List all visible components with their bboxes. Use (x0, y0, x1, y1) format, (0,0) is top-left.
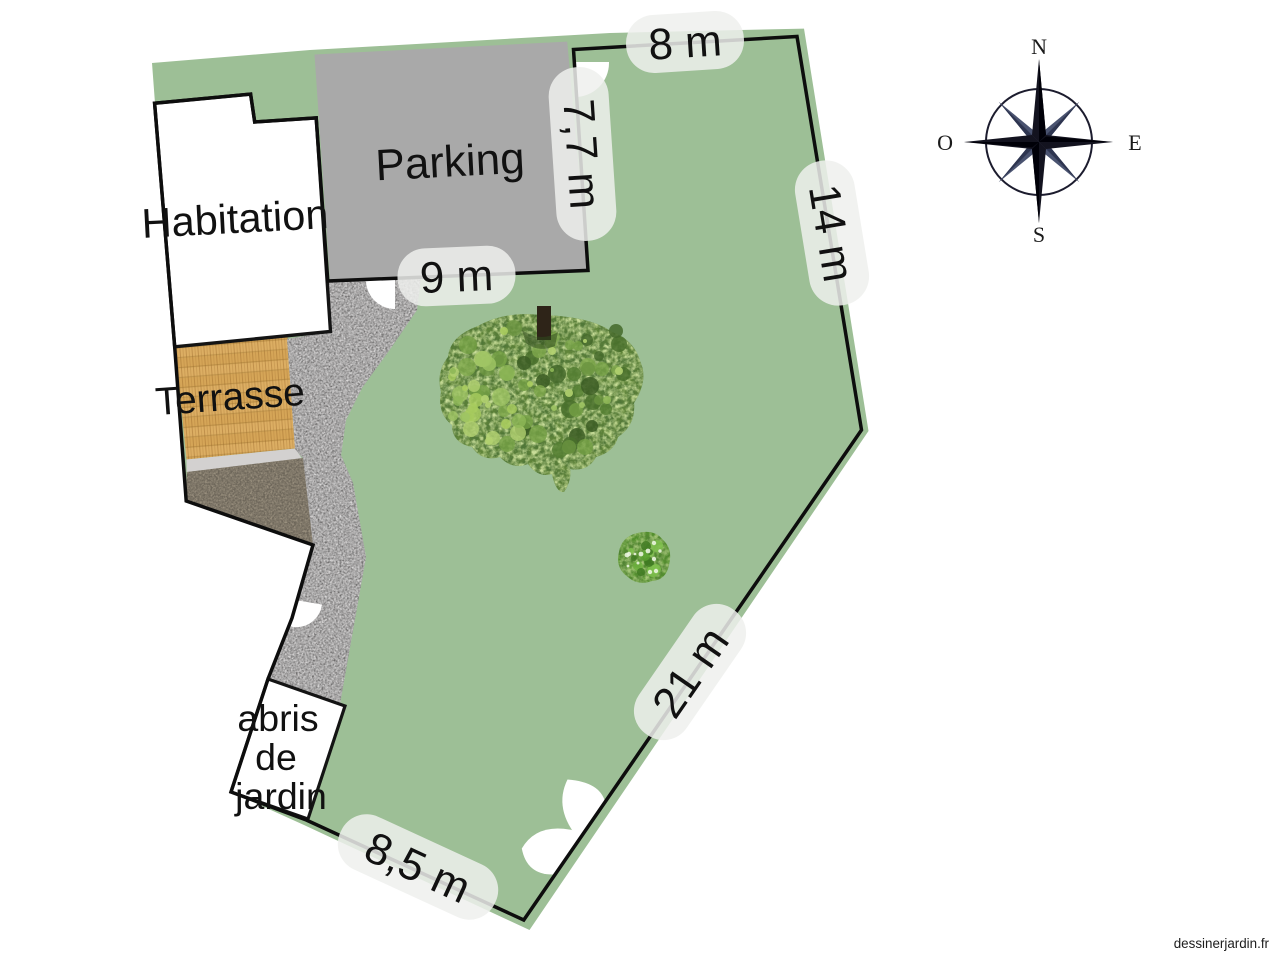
svg-text:7,7 m: 7,7 m (553, 98, 609, 211)
svg-text:N: N (1031, 34, 1047, 59)
svg-text:abris: abris (237, 697, 318, 739)
svg-text:Habitation: Habitation (140, 190, 329, 247)
svg-text:8 m: 8 m (647, 16, 723, 70)
svg-text:de: de (255, 736, 297, 778)
svg-text:S: S (1033, 222, 1045, 247)
svg-text:jardin: jardin (234, 775, 327, 817)
svg-text:9 m: 9 m (419, 251, 494, 303)
svg-text:dessinerjardin.fr: dessinerjardin.fr (1174, 936, 1270, 951)
svg-text:E: E (1128, 130, 1141, 155)
svg-text:Parking: Parking (374, 134, 526, 191)
svg-text:O: O (937, 130, 953, 155)
